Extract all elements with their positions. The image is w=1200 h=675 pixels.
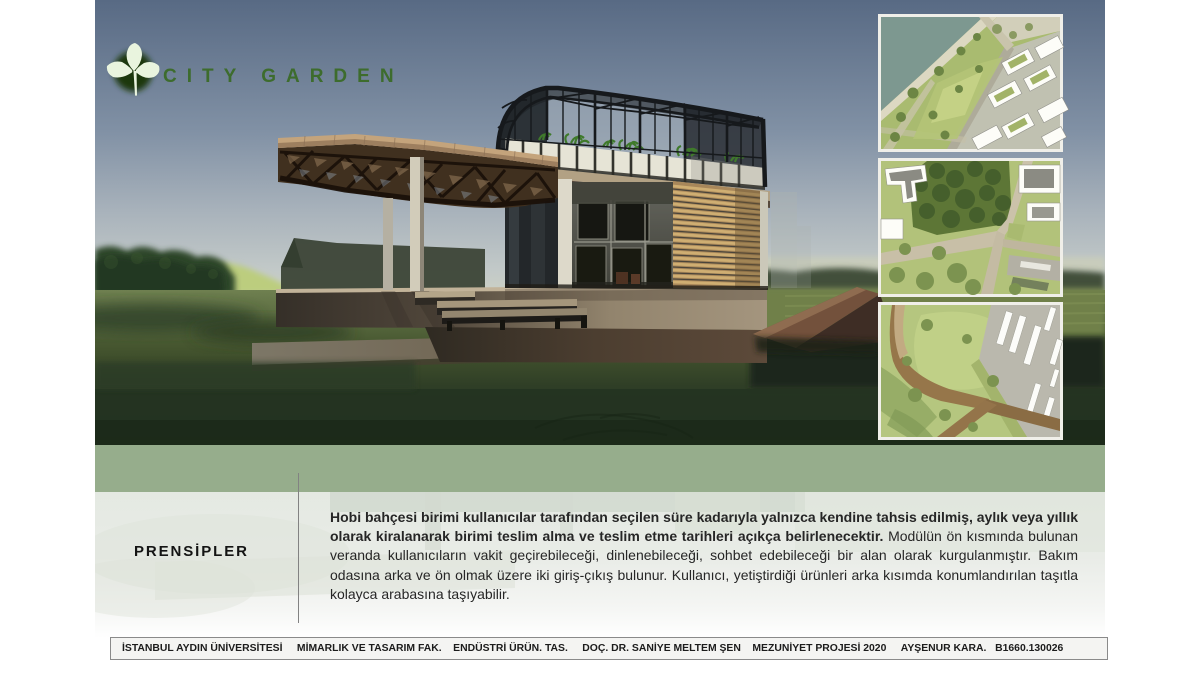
svg-text:CITY GARDEN: CITY GARDEN [163,66,404,87]
